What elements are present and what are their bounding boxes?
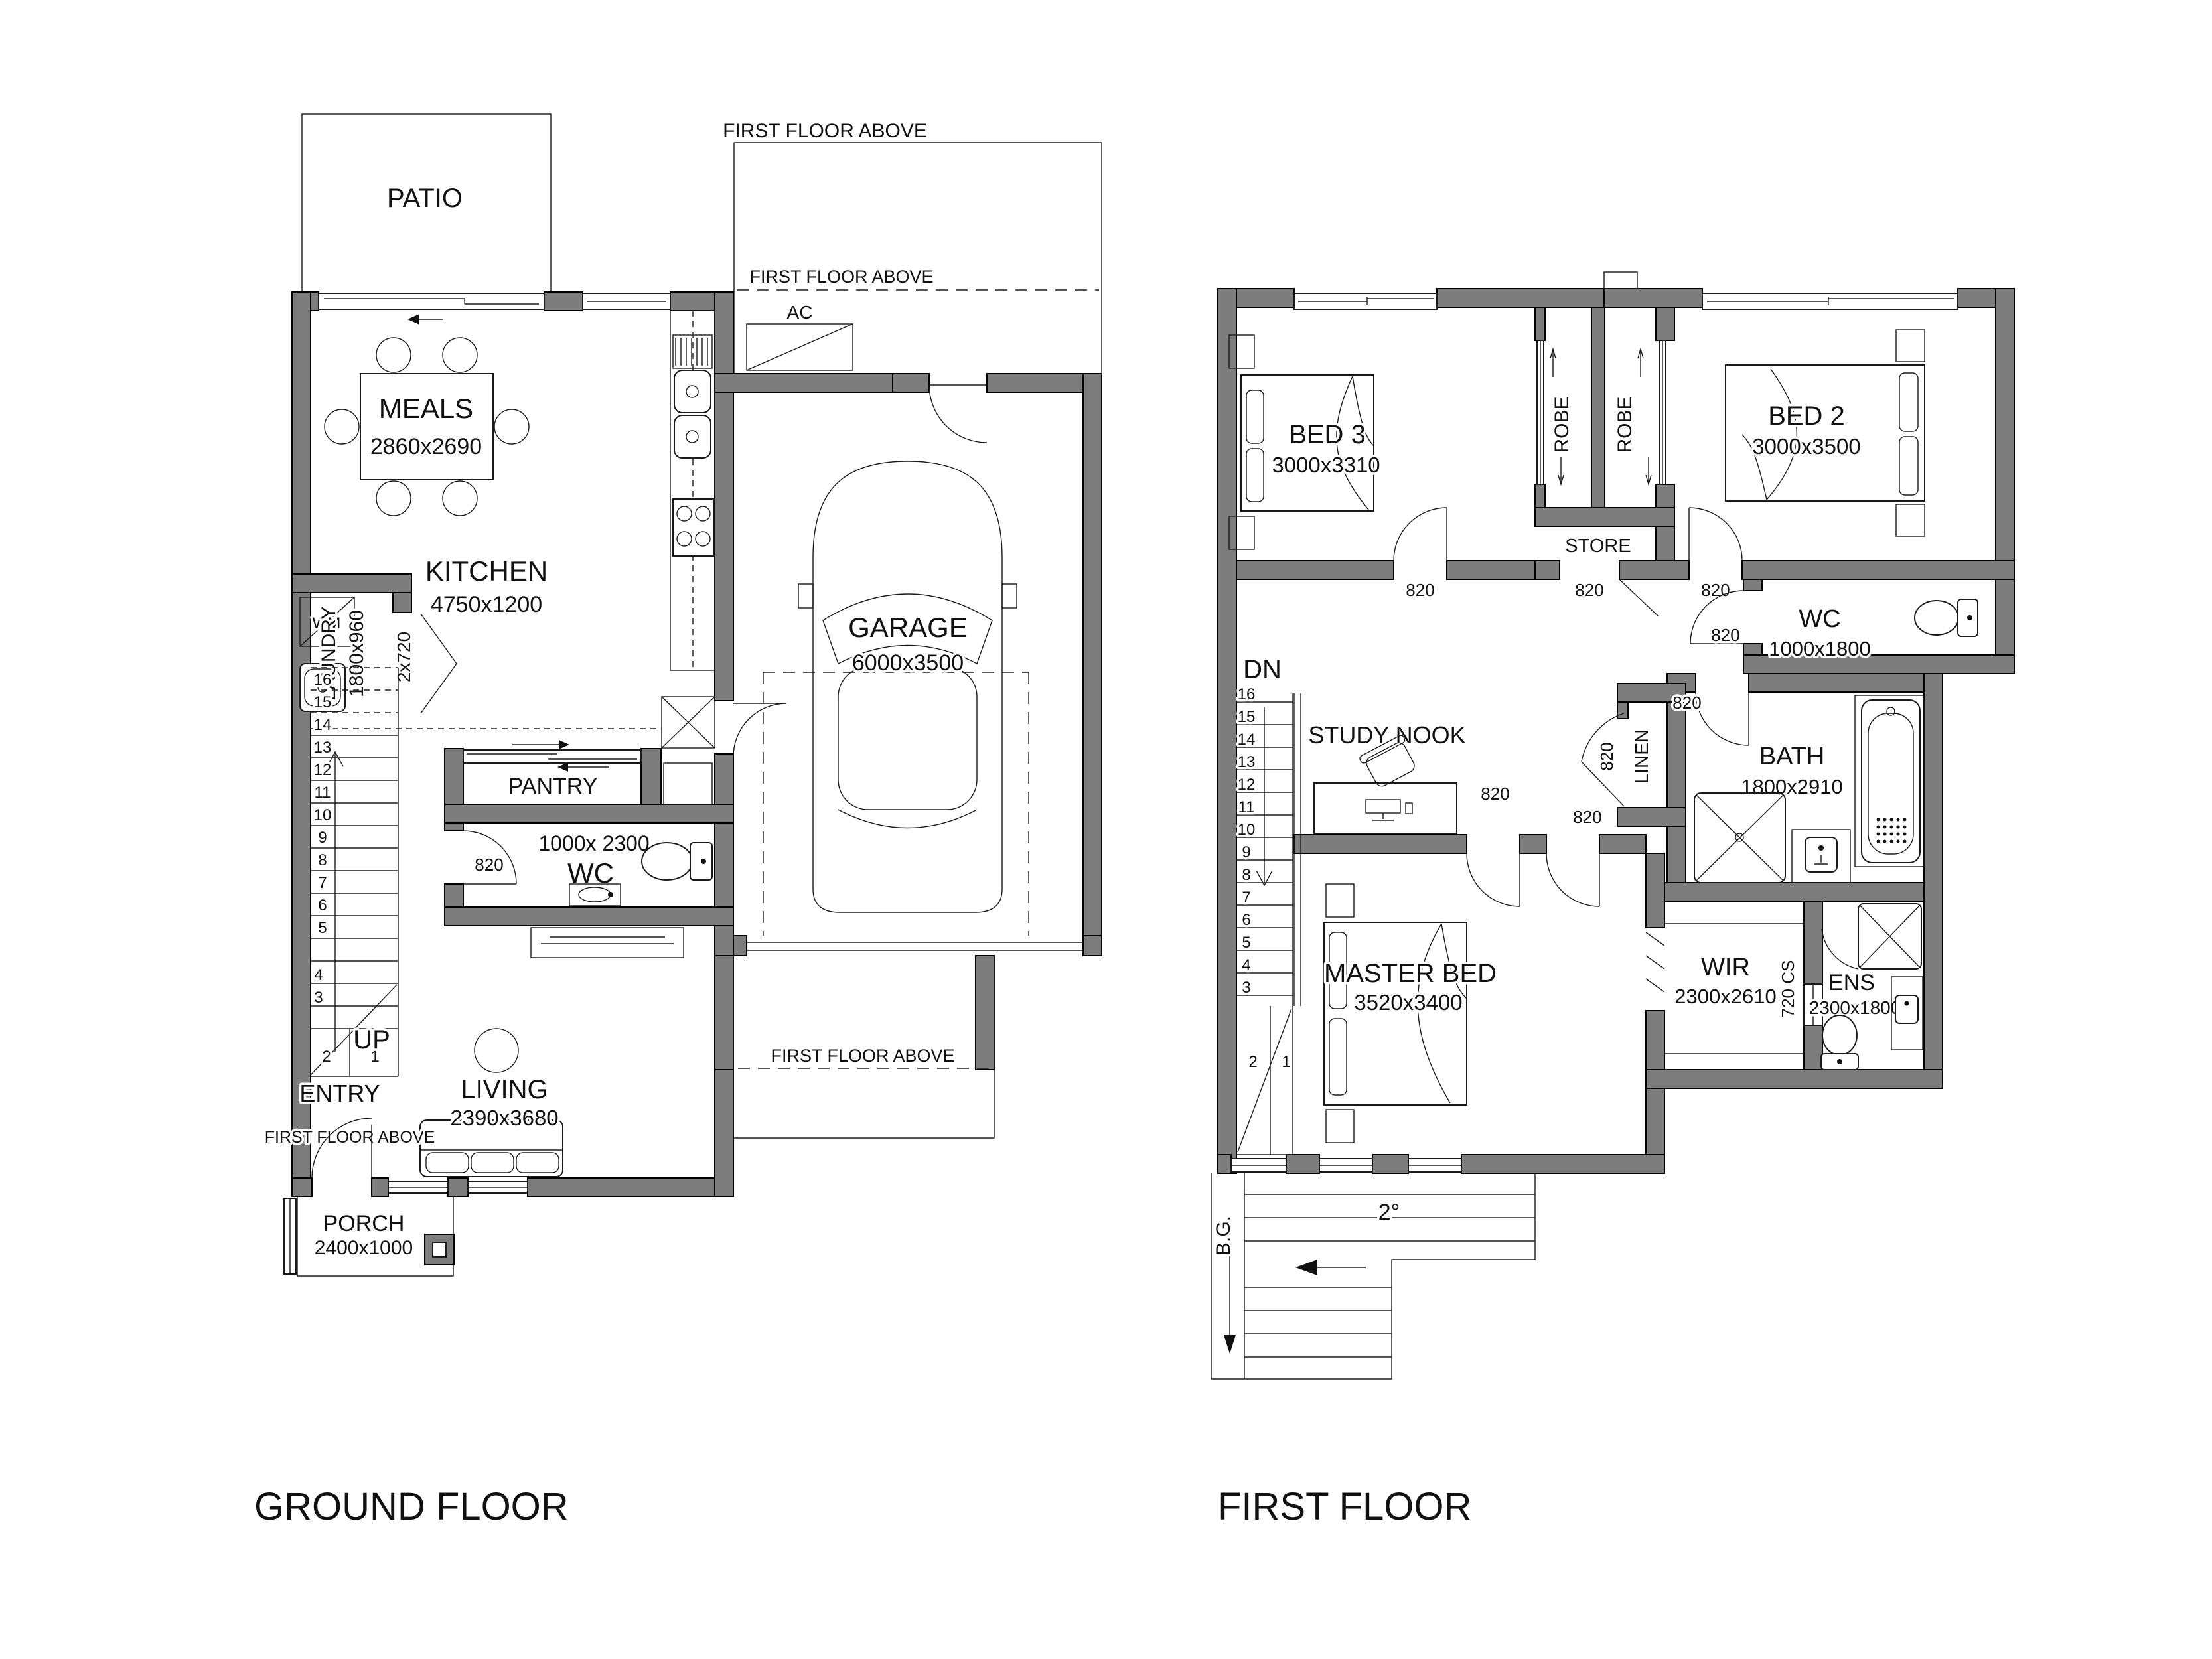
hall-door — [1546, 853, 1599, 906]
door-820: 820 — [1481, 784, 1509, 804]
garage: GARAGE 6000x3500 — [733, 461, 1083, 950]
stair-num: 2 — [1248, 1053, 1257, 1071]
ffa-entry-label: FIRST FLOOR ABOVE — [265, 1128, 435, 1147]
toilet — [1821, 1015, 1858, 1070]
garage-door — [747, 942, 1083, 950]
door-820: 820 — [1573, 807, 1601, 827]
laundry-door-size: 2x720 — [394, 632, 414, 682]
wir-label: WIR — [1701, 954, 1750, 981]
ffa-overhang-label: FIRST FLOOR ABOVE — [771, 1046, 954, 1066]
stair-num: 6 — [1242, 911, 1250, 929]
linen: LINEN 820 — [1582, 713, 1652, 806]
stair-num: 11 — [315, 784, 331, 802]
first-stairs: DN 16 15 14 13 12 11 10 9 8 7 6 5 4 3 2 … — [1236, 655, 1301, 1155]
kitchen-label: KITCHEN — [425, 555, 548, 587]
door-820: 820 — [1711, 625, 1739, 645]
bed3-room: BED 3 3000x3310 — [1229, 335, 1447, 561]
bed3-dim: 3000x3310 — [1272, 453, 1380, 477]
shower — [1694, 793, 1785, 883]
tv-unit — [531, 928, 684, 958]
roof-below: 2° B.G. — [1211, 1173, 1535, 1379]
porch-label: PORCH — [323, 1211, 405, 1236]
kitchen-dim: 4750x1200 — [431, 592, 542, 617]
bed2-door — [1689, 508, 1742, 561]
ffa-garage-label: FIRST FLOOR ABOVE — [749, 267, 933, 287]
ground-wc: 1000x 2300 WC 820 — [463, 831, 712, 906]
laundry-dim: 1800x960 — [346, 610, 368, 697]
stair-num: 6 — [318, 897, 327, 914]
store-door — [1619, 579, 1658, 616]
bed3-door — [1394, 508, 1447, 561]
entry-label: ENTRY — [299, 1080, 380, 1107]
car — [798, 461, 1017, 912]
bathtub — [1855, 695, 1924, 867]
master-label: MASTER BED — [1324, 959, 1497, 988]
robe-label: ROBE — [1551, 396, 1573, 453]
patio-label: PATIO — [387, 184, 463, 213]
garage-internal-door — [733, 703, 786, 757]
stair-num: 14 — [314, 716, 332, 734]
door-820: 820 — [1672, 693, 1701, 713]
broom-cupboard — [662, 697, 715, 748]
cavity-slider-label: 720 CS — [1778, 960, 1798, 1018]
study-nook: STUDY NOOK 820 820 — [1308, 721, 1601, 906]
meals-sliding-door — [319, 293, 670, 325]
pantry: PANTRY — [463, 740, 712, 804]
stair-num: 15 — [314, 693, 332, 711]
garage-label: GARAGE — [848, 612, 968, 643]
bathroom: BATH 1800x2910 820 — [1672, 692, 1924, 883]
stair-num: 16 — [1238, 685, 1256, 703]
ffa-top-label: FIRST FLOOR ABOVE — [723, 120, 927, 142]
ac-unit: AC — [747, 302, 853, 370]
stair-num: 12 — [314, 761, 332, 779]
ens-label: ENS — [1828, 970, 1875, 995]
dn-label: DN — [1243, 655, 1282, 684]
garage-dim: 6000x3500 — [852, 650, 964, 676]
wc-dim: 1000x 2300 — [538, 831, 649, 855]
meals-dim: 2860x2690 — [370, 434, 482, 459]
first-floor-plan: BED 3 3000x3310 ROBE ROBE STORE BED 2 30… — [1211, 272, 2014, 1528]
bed — [1726, 330, 1925, 536]
garage-side-door — [929, 385, 987, 443]
bg-label: B.G. — [1213, 1216, 1234, 1256]
bed2-room: BED 2 3000x3500 — [1689, 330, 1925, 561]
stair-num: 13 — [314, 739, 332, 757]
meals-label: MEALS — [379, 393, 473, 424]
bifold-door — [421, 614, 457, 713]
floorplan-drawing: PATIO FIRST FLOOR ABOVE FIRST FLOOR ABOV… — [0, 0, 2212, 1659]
kitchen-bench: KITCHEN 4750x1200 — [425, 311, 715, 670]
overhang-outline: FIRST FLOOR ABOVE — [733, 956, 994, 1138]
stair-num: 3 — [1242, 979, 1250, 997]
door-820: 820 — [1406, 580, 1434, 600]
stair-num: 4 — [314, 966, 323, 984]
bath-door — [1696, 692, 1749, 745]
stair-num: 14 — [1238, 731, 1256, 749]
stair-num: 8 — [318, 851, 327, 869]
stair-num: 16 — [314, 671, 332, 689]
bed3-label: BED 3 — [1289, 420, 1366, 449]
bed2-label: BED 2 — [1768, 401, 1845, 431]
dining-table: MEALS 2860x2690 — [325, 338, 529, 516]
living-dim: 2390x3680 — [450, 1106, 558, 1130]
first-floor-title: FIRST FLOOR — [1218, 1485, 1471, 1528]
wir-dim: 2300x2610 — [1674, 985, 1776, 1008]
roof-slope: 2° — [1378, 1200, 1400, 1225]
stair-num: 2 — [322, 1048, 331, 1066]
ground-floor-title: GROUND FLOOR — [254, 1485, 569, 1528]
master-bedroom: MASTER BED 3520x3400 — [1324, 884, 1497, 1143]
master-door — [1467, 853, 1520, 906]
study-label: STUDY NOOK — [1308, 721, 1465, 749]
ground-floor-plan: PATIO FIRST FLOOR ABOVE FIRST FLOOR ABOV… — [254, 114, 1102, 1528]
porch-dim: 2400x1000 — [315, 1237, 413, 1259]
living-label: LIVING — [461, 1075, 548, 1104]
front-door — [312, 1118, 372, 1178]
robe-label: ROBE — [1614, 396, 1636, 453]
master-dim: 3520x3400 — [1354, 990, 1462, 1015]
door-820: 820 — [1701, 580, 1730, 600]
stair-num: 4 — [1242, 956, 1250, 974]
wir-opening-hatch — [1646, 932, 1664, 992]
bath-label: BATH — [1759, 743, 1825, 770]
toilet — [1915, 599, 1978, 636]
stair-num: 7 — [318, 874, 327, 892]
stair-num: 5 — [1242, 934, 1250, 952]
up-label: UP — [353, 1025, 390, 1054]
first-wc: WC 1000x1800 820 — [1690, 591, 1978, 660]
patio: PATIO — [302, 114, 551, 294]
wc-label: WC — [1799, 605, 1840, 633]
roof-vent — [1604, 272, 1637, 289]
linen-label: LINEN — [1631, 729, 1652, 784]
stair-num: 10 — [314, 806, 332, 824]
store-label: STORE — [1565, 536, 1631, 557]
door-820: 820 — [1575, 580, 1603, 600]
stair-num: 8 — [1242, 866, 1250, 884]
stair-num: 1 — [1282, 1053, 1290, 1071]
shower — [1822, 904, 1921, 969]
wir: WIR 2300x2610 720 CS — [1646, 924, 1822, 1054]
stove — [673, 499, 713, 556]
first-floor-above-outline: FIRST FLOOR ABOVE FIRST FLOOR ABOVE — [723, 120, 1102, 374]
stair-num: 9 — [1242, 843, 1250, 861]
kitchen-sink — [674, 370, 711, 458]
stair-num: 10 — [1238, 821, 1256, 839]
stair-num: 15 — [1238, 708, 1256, 726]
ensuite: ENS 2300x1800 — [1809, 904, 1923, 1070]
stair-num: 13 — [1238, 753, 1256, 771]
stair-num: 5 — [318, 919, 327, 937]
desk — [1314, 783, 1457, 833]
floorplan-canvas: PATIO FIRST FLOOR ABOVE FIRST FLOOR ABOV… — [0, 0, 2212, 1659]
stair-num: 12 — [1238, 776, 1256, 794]
side-table — [475, 1029, 518, 1072]
door-820: 820 — [1597, 742, 1617, 770]
bed2-dim: 3000x3500 — [1752, 434, 1860, 459]
shower-door — [1822, 929, 1858, 969]
bath-vanity — [1792, 829, 1850, 883]
stair-num: 3 — [314, 989, 323, 1007]
ac-label: AC — [787, 302, 813, 323]
stair-num: 7 — [1242, 889, 1250, 906]
stair-num: 11 — [1238, 798, 1255, 816]
pantry-label: PANTRY — [508, 774, 598, 799]
ens-dim: 2300x1800 — [1809, 997, 1901, 1018]
toilet — [642, 843, 712, 880]
ens-vanity — [1891, 977, 1923, 1050]
door-820: 820 — [475, 855, 503, 875]
wc-dim: 1000x1800 — [1769, 637, 1870, 660]
stair-num: 9 — [318, 829, 327, 847]
